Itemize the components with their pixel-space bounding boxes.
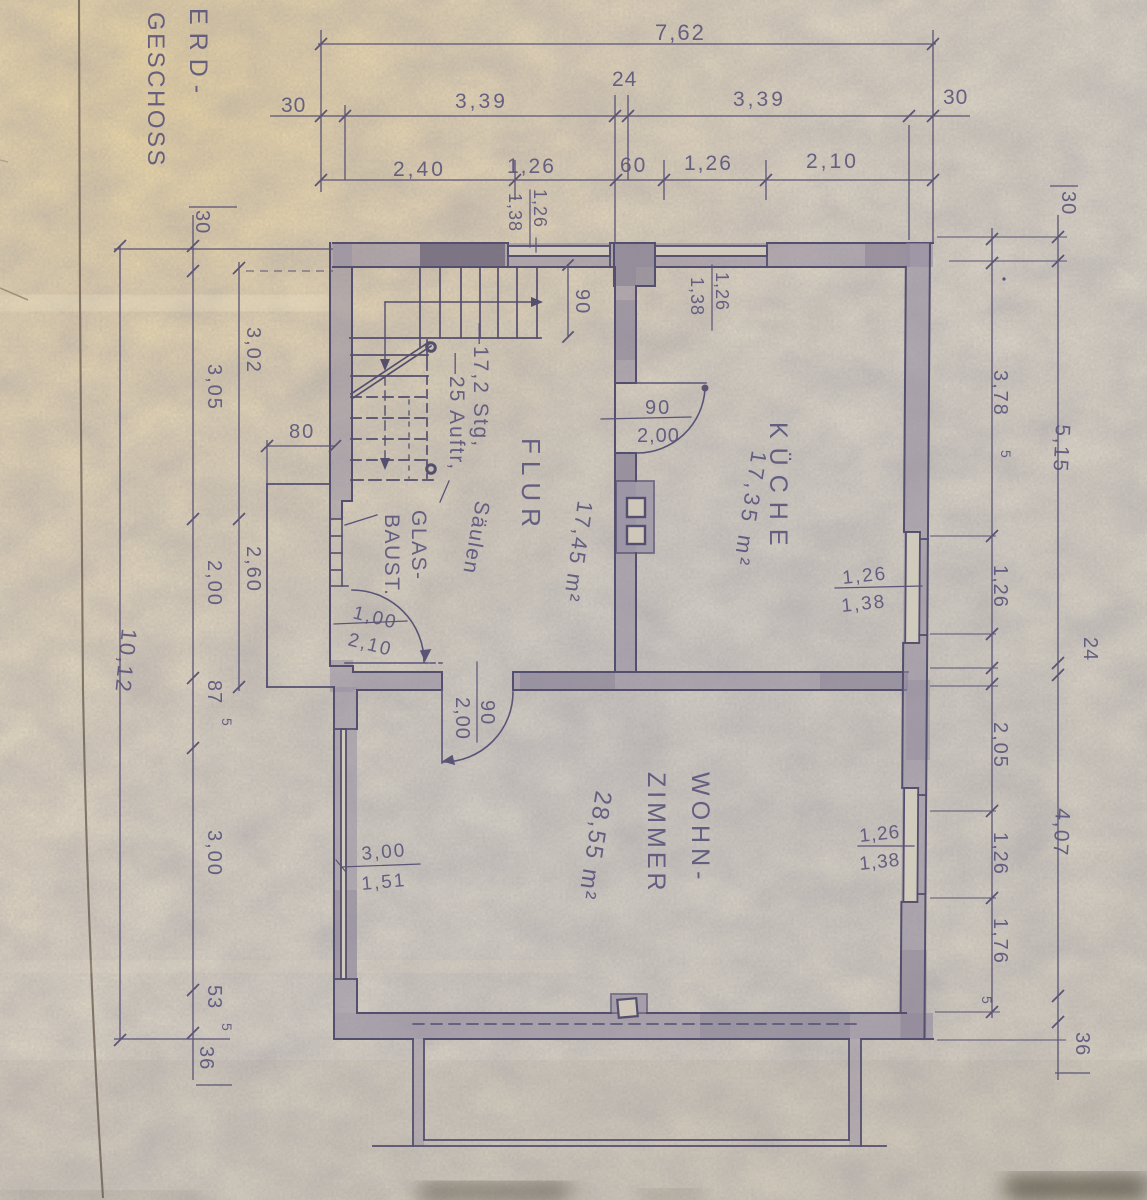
svg-text:1,76: 1,76 <box>989 918 1011 965</box>
svg-text:GESCHOSS: GESCHOSS <box>142 12 169 168</box>
svg-text:KÜCHE: KÜCHE <box>764 422 792 555</box>
svg-text:30: 30 <box>191 210 213 234</box>
svg-text:FLUR: FLUR <box>516 438 546 534</box>
svg-text:1,26: 1,26 <box>712 272 732 311</box>
svg-text:90: 90 <box>645 397 671 419</box>
svg-text:ERD-: ERD- <box>184 8 212 101</box>
svg-text:1,26: 1,26 <box>530 189 550 228</box>
svg-text:3,02: 3,02 <box>242 327 264 374</box>
svg-text:—17,2 Stg,: —17,2 Stg, <box>469 323 492 448</box>
svg-text:GLAS-: GLAS- <box>407 510 430 581</box>
svg-text:90: 90 <box>476 700 498 726</box>
svg-text:3,78: 3,78 <box>989 370 1011 417</box>
svg-text:5: 5 <box>219 718 235 726</box>
svg-text:5: 5 <box>998 450 1014 458</box>
svg-text:2,40: 2,40 <box>393 158 446 181</box>
svg-text:87: 87 <box>203 680 225 704</box>
svg-text:5,15: 5,15 <box>1048 424 1074 474</box>
svg-text:60: 60 <box>620 154 647 177</box>
svg-text:24: 24 <box>1079 637 1101 661</box>
svg-text:5: 5 <box>979 996 995 1004</box>
svg-text:5: 5 <box>219 1023 235 1031</box>
svg-text:ZIMMER: ZIMMER <box>642 772 670 895</box>
svg-text:1,26: 1,26 <box>858 822 901 847</box>
svg-text:90: 90 <box>571 289 593 315</box>
svg-text:36: 36 <box>195 1046 217 1070</box>
svg-text:3,00: 3,00 <box>203 830 225 877</box>
svg-text:BAUST.: BAUST. <box>380 514 403 597</box>
svg-text:1,38: 1,38 <box>858 850 901 875</box>
svg-text:2,00: 2,00 <box>203 560 225 607</box>
svg-text:1,26: 1,26 <box>989 832 1011 875</box>
svg-text:3,39: 3,39 <box>455 90 508 113</box>
svg-text:36: 36 <box>1071 1032 1093 1056</box>
svg-text:24: 24 <box>612 68 637 91</box>
svg-text:2,00: 2,00 <box>451 697 473 740</box>
svg-text:53: 53 <box>203 985 225 1009</box>
svg-text:2,00: 2,00 <box>637 425 680 447</box>
svg-text:1,26: 1,26 <box>684 152 733 175</box>
svg-text:1,51: 1,51 <box>361 870 408 895</box>
svg-text:3,39: 3,39 <box>733 88 786 111</box>
svg-text:2,05: 2,05 <box>989 722 1011 769</box>
svg-text:—25 Auftr,: —25 Auftr, <box>445 353 468 471</box>
svg-text:1,38: 1,38 <box>687 277 707 316</box>
svg-text:2,10: 2,10 <box>806 150 859 173</box>
svg-text:2,60: 2,60 <box>242 546 264 593</box>
svg-text:1,26: 1,26 <box>989 565 1011 608</box>
svg-text:3,05: 3,05 <box>203 364 225 411</box>
svg-text:30: 30 <box>281 94 306 117</box>
svg-text:4,07: 4,07 <box>1048 808 1074 858</box>
svg-text:WOHN-: WOHN- <box>686 772 714 884</box>
svg-text:30: 30 <box>943 86 968 109</box>
svg-text:80: 80 <box>289 421 315 443</box>
svg-text:30: 30 <box>1057 191 1079 215</box>
svg-text:7,62: 7,62 <box>655 20 706 45</box>
svg-text:1,26: 1,26 <box>507 155 556 178</box>
svg-text:3,00: 3,00 <box>361 840 408 865</box>
